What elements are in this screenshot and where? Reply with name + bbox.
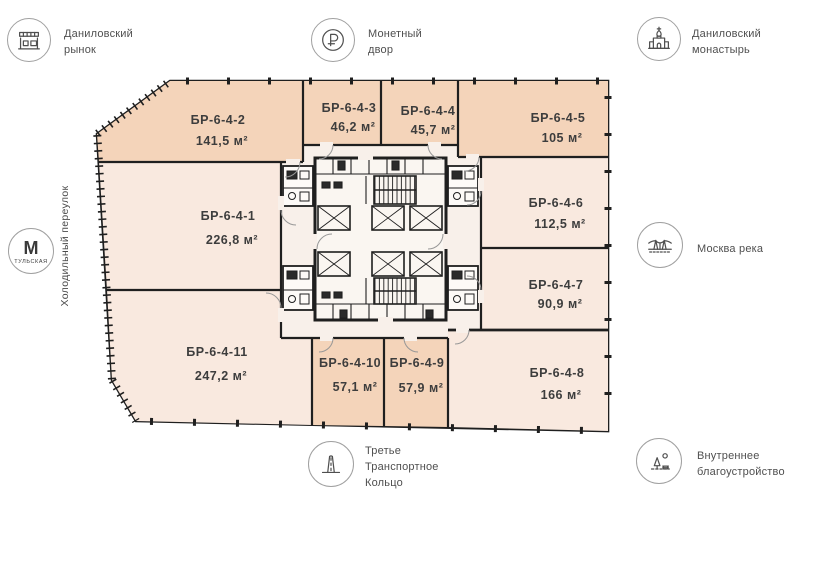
wc-block [283,266,313,310]
metro-station-label: ТУЛЬСКАЯ [14,259,47,265]
room-area-label: 57,9 м² [399,381,444,395]
room-name-label: БР-6-4-8 [530,366,585,380]
room-area-label: 45,7 м² [411,123,456,137]
landmark-label-monastery: Даниловский монастырь [692,27,761,59]
room-area-label: 141,5 м² [196,134,248,148]
landmark-danilov-monastery [637,17,681,61]
landmark-landscaping [636,438,682,484]
room-name-label: БР-6-4-10 [319,356,381,370]
room-area-label: 166 м² [541,388,582,402]
landmark-metro-tulskaya: М ТУЛЬСКАЯ [8,228,54,274]
landmark-label-landscaping: Внутреннее благоустройство [697,449,785,481]
wc-block [448,166,478,206]
landmark-danilovsky-market [7,18,51,62]
room-name-label: БР-6-4-11 [186,345,247,359]
landmark-third-ring-road [308,441,354,487]
room-name-label: БР-6-4-2 [191,113,246,127]
room-name-label: БР-6-4-4 [401,104,456,118]
room-br-6-4-8[interactable]: БР-6-4-8 166 м² [448,331,608,431]
room-name-label: БР-6-4-3 [322,101,377,115]
room-name-label: БР-6-4-1 [201,209,256,223]
room-area-label: 46,2 м² [331,120,376,134]
room-br-6-4-7[interactable]: БР-6-4-7 90,9 м² [481,248,608,330]
stairs-bottom [374,278,416,304]
landmark-label-river: Москва река [697,242,763,258]
room-area-label: 247,2 м² [195,369,247,383]
wc-block [283,166,313,206]
bridge-icon [645,230,675,260]
room-area-label: 112,5 м² [534,217,585,231]
ruble-icon [318,25,348,55]
room-br-6-4-1[interactable]: БР-6-4-1 226,8 м² [99,162,281,290]
landmark-moskva-river [637,222,683,268]
metro-icon: М [24,239,39,257]
stairs-top [374,176,416,204]
room-br-6-4-9[interactable]: БР-6-4-9 57,9 м² [384,338,448,427]
wc-block [448,266,478,310]
room-br-6-4-6[interactable]: БР-6-4-6 112,5 м² [481,157,608,248]
room-name-label: БР-6-4-6 [529,196,584,210]
floor-plan-page: БР-6-4-2 141,5 м² БР-6-4-3 46,2 м² БР-6-… [0,0,820,581]
room-br-6-4-4[interactable]: БР-6-4-4 45,7 м² [381,81,458,145]
room-name-label: БР-6-4-7 [529,278,584,292]
street-label: Холодильный переулок [59,171,71,321]
room-area-label: 226,8 м² [206,233,258,247]
landmark-label-market: Даниловский рынок [64,27,133,59]
room-area-label: 90,9 м² [538,297,583,311]
room-name-label: БР-6-4-5 [531,111,586,125]
tree-bench-icon [644,446,674,476]
landmark-mint [311,18,355,62]
church-icon [644,24,674,54]
landmark-label-ring-road: Третье Транспортное Кольцо [365,444,439,492]
floor-plan: БР-6-4-2 141,5 м² БР-6-4-3 46,2 м² БР-6-… [0,0,820,581]
room-br-6-4-3[interactable]: БР-6-4-3 46,2 м² [303,81,381,145]
market-icon [14,25,44,55]
room-name-label: БР-6-4-9 [390,356,445,370]
building-core [312,155,448,322]
room-area-label: 105 м² [542,131,583,145]
road-icon [316,449,346,479]
room-br-6-4-5[interactable]: БР-6-4-5 105 м² [458,81,608,157]
room-shape[interactable] [448,331,608,431]
room-area-label: 57,1 м² [333,380,378,394]
landmark-label-mint: Монетный двор [368,27,422,59]
room-br-6-4-2[interactable]: БР-6-4-2 141,5 м² [97,81,303,162]
room-shape[interactable] [99,162,281,290]
